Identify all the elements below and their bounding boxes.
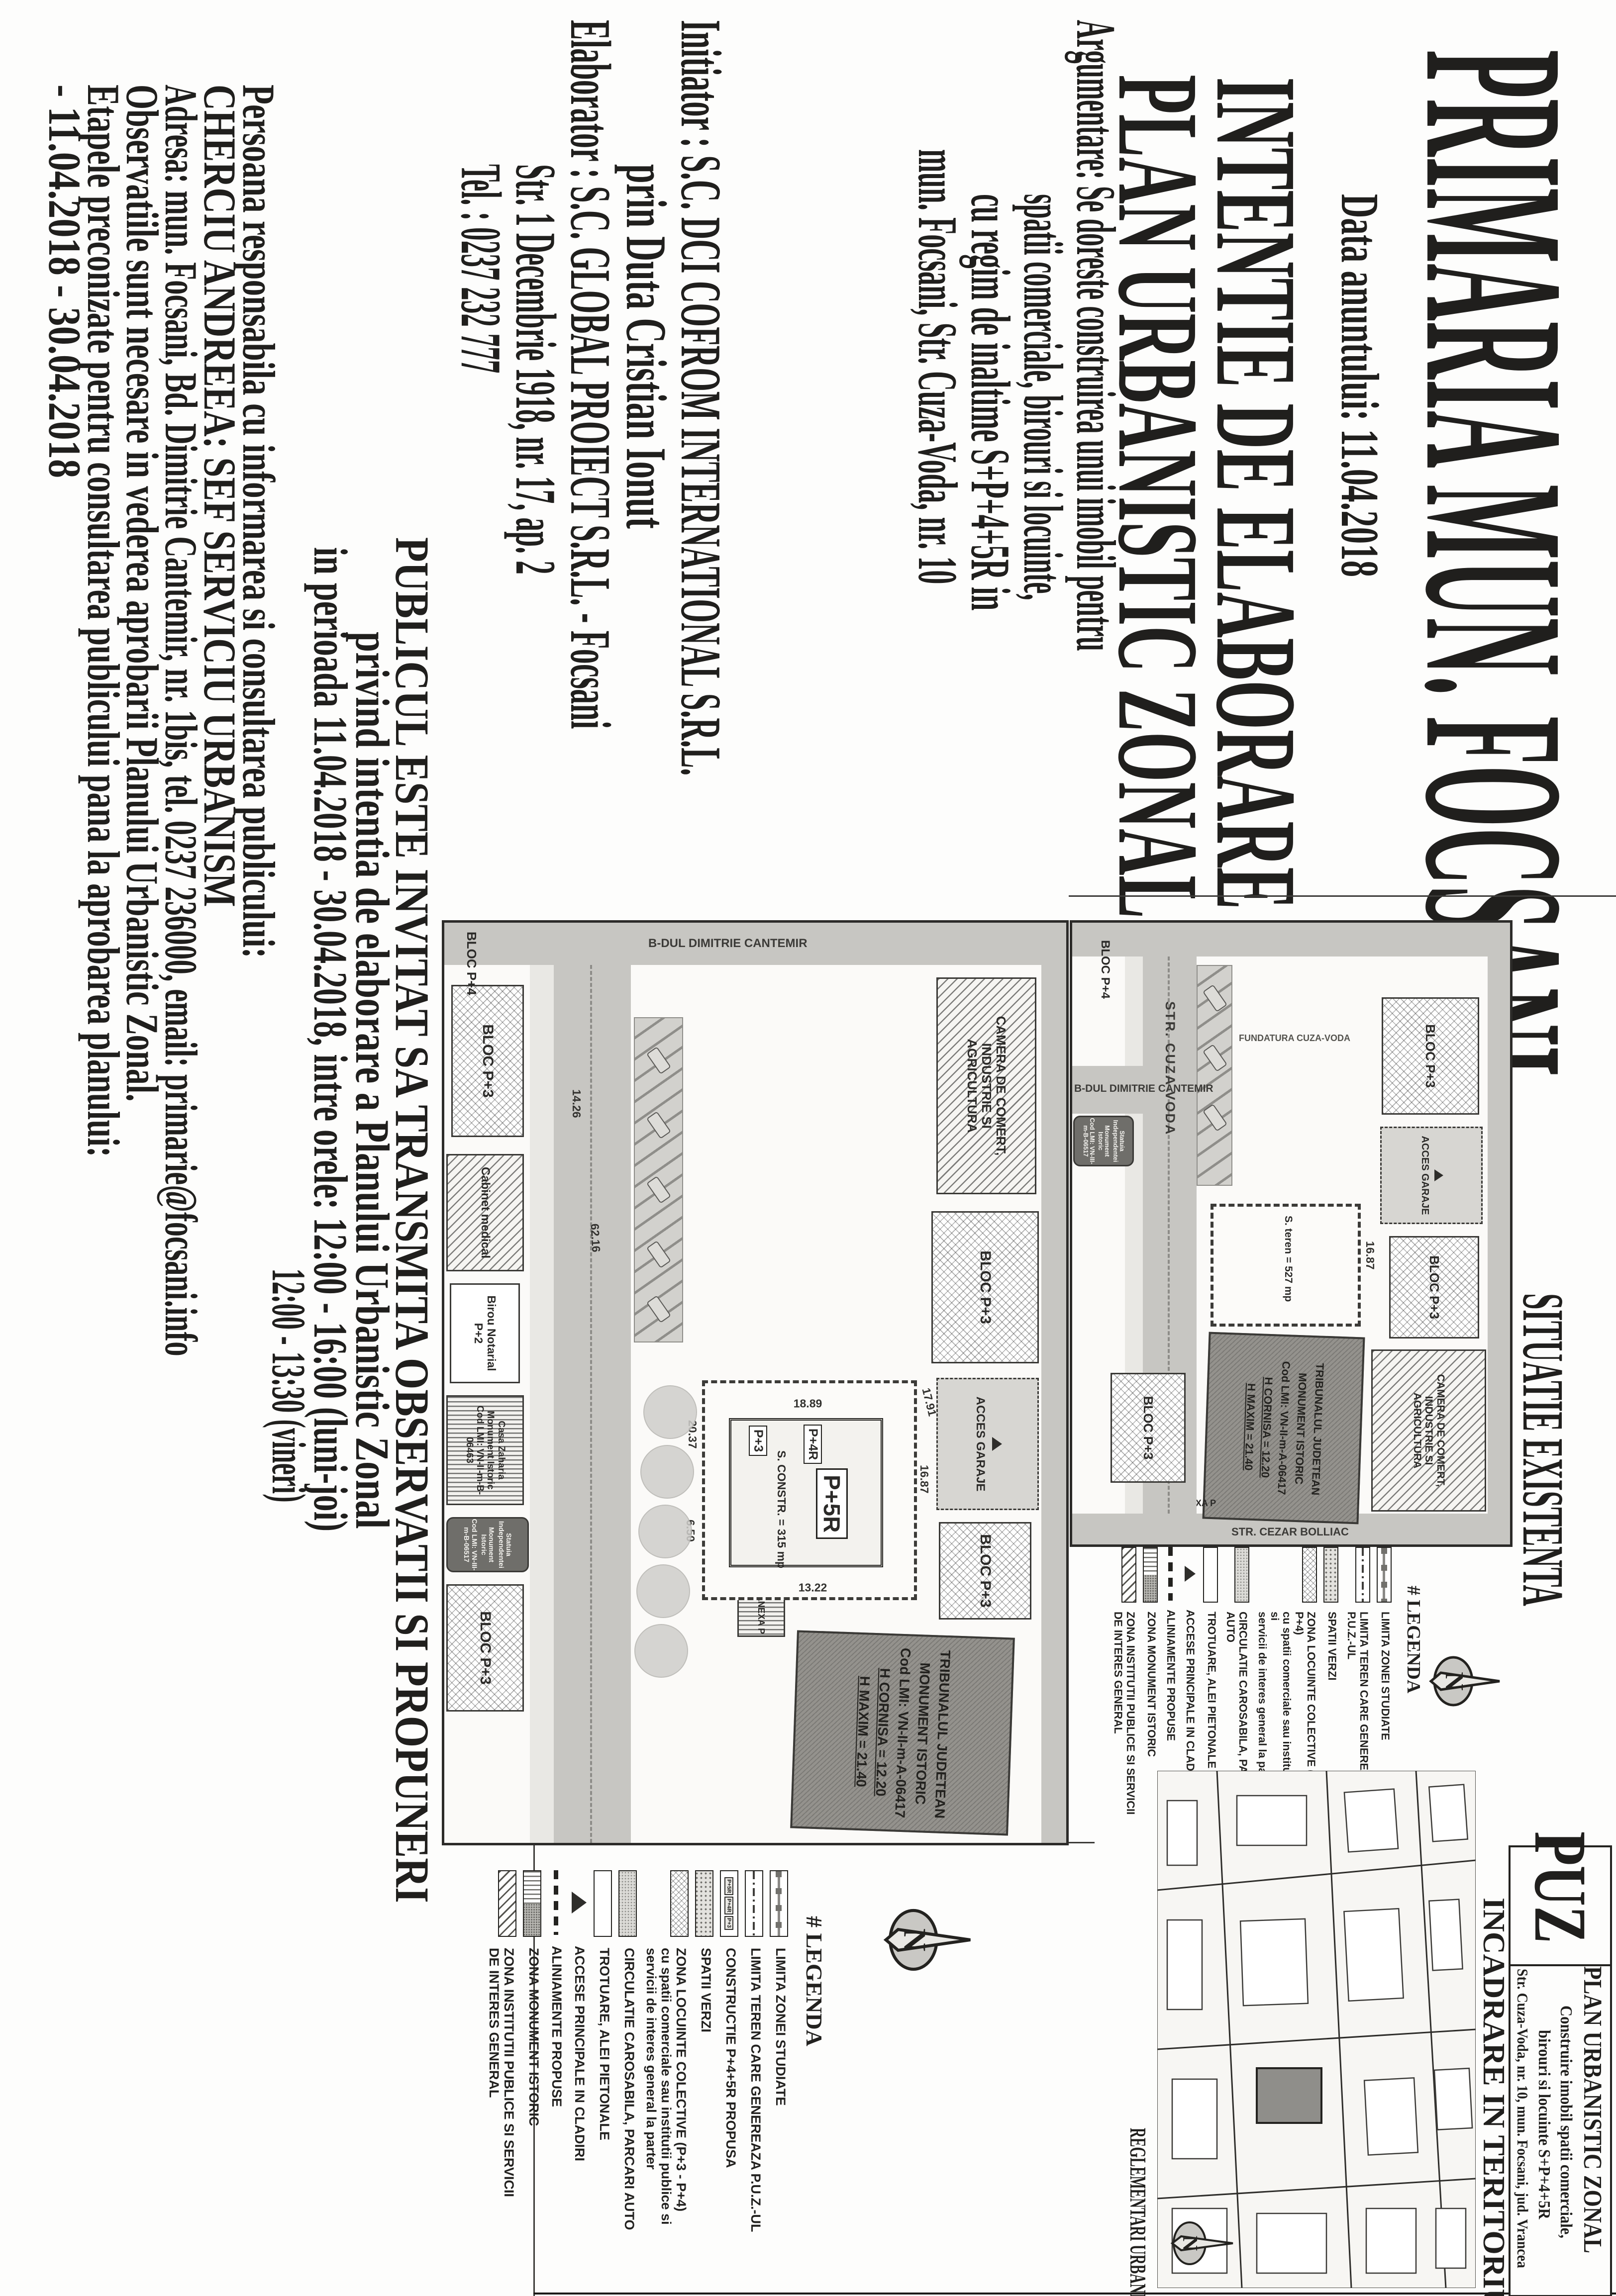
statue-block: Statuia Independentei Monument Istoric C… xyxy=(446,1517,529,1572)
incadrare-heading: INCADRARE IN TERITORIU xyxy=(1478,1898,1509,2296)
street-fundatura: FUNDATURA CUZA-VODA xyxy=(1239,1033,1350,1044)
access-arrow-icon xyxy=(992,1437,1002,1451)
sheet-edge xyxy=(533,2293,1616,2295)
car-icon xyxy=(1203,1104,1227,1132)
tree-icon xyxy=(640,1445,694,1499)
dash-line-icon xyxy=(548,1870,564,1935)
cabinet-parcel: Cabinet medical xyxy=(446,1154,524,1271)
parking-strip xyxy=(1197,965,1232,1186)
situatie-map: BLOC P+3 ACCES GARAJE BLOC P+3 CAMERA DE… xyxy=(1070,920,1513,1547)
acces-garaje-label: ACCES GARAJE xyxy=(1419,1136,1431,1215)
legend-item: ZONA INSTITUTII PUBLICE SI SERVICII DE I… xyxy=(1111,1547,1136,1825)
access-arrow-icon xyxy=(1435,1169,1444,1181)
diamond-hatch-icon xyxy=(670,1870,689,1937)
reglementari-legend: # LEGENDA LIMITA ZONEI STUDIATE LIMITA T… xyxy=(480,1870,827,2278)
access-triangle-icon xyxy=(1184,1547,1197,1601)
elaborator-line: Str. 1 Decembrie 1918, nr. 17, ap. 2 xyxy=(506,164,564,574)
proposed-building: P+5R P+4R P+3 S. CONSTR. = 315 mp xyxy=(729,1418,883,1567)
limit-line-squares-icon xyxy=(1377,1547,1392,1603)
tree-icon xyxy=(636,1564,690,1618)
title-block-line: birouri si locuinte S+P+4+5R xyxy=(1536,2030,1553,2219)
road-dots-icon xyxy=(618,1870,637,1937)
reglementari-map: B-DUL DIMITRIE CANTEMIR CAMERA DE COMERT… xyxy=(442,920,1069,1845)
dim: 16.87 xyxy=(917,1465,931,1494)
road-band xyxy=(1041,923,1066,1843)
situatie-title: SITUATIE EXISTENTA xyxy=(1514,1293,1572,1606)
elaborator-line: Tel. : 0237 232 777 xyxy=(452,164,509,373)
argumentare-line: mun. Focsani, Str. Cuza-Voda, nr. 10 xyxy=(909,149,965,584)
legend-title: # LEGENDA xyxy=(801,1916,827,2278)
tribunal-line: H MAXIM = 21.40 xyxy=(1242,1383,1258,1470)
camera-label: CAMERA DE COMERT, xyxy=(1434,1374,1446,1487)
green-dots-icon xyxy=(695,1870,713,1937)
car-icon xyxy=(1203,984,1227,1012)
tree-icon xyxy=(634,1624,688,1678)
limit-dash-dot-icon xyxy=(745,1870,763,1937)
tribunal-block: TRIBUNALUL JUDETEAN MONUMENT ISTORIC Cod… xyxy=(790,1630,1015,1835)
sheet-divider xyxy=(1069,895,1616,897)
legend-item: P+5R P+4R P+3 CONSTRUCTIE P+4+5R PROPUSA xyxy=(720,1870,738,2278)
compass-north-icon: N xyxy=(880,1900,972,1980)
bloc-p3-parcel: BLOC P+3 xyxy=(1389,1236,1479,1339)
dim-1687: 16.87 xyxy=(1363,1241,1377,1270)
legend-item: ACCESE PRINCIPALE IN CLADIRI xyxy=(571,1870,587,2278)
car-icon xyxy=(646,1176,671,1204)
bloc-p3-parcel: BLOC P+3 xyxy=(451,985,524,1137)
bloc-p3-parcel: BLOC P+3 xyxy=(1382,997,1479,1115)
dim: 18.89 xyxy=(794,1397,822,1410)
tree-icon xyxy=(643,1385,697,1439)
date-line: Data anuntului: 11.04.2018 xyxy=(1332,194,1386,577)
incadrare-city-map: N xyxy=(1157,1771,1476,2288)
argumentare-line: cu regim de inaltime S+P+4+5R in xyxy=(962,194,1018,611)
argumentare-line: spatii comerciale, birouri si locuinte, xyxy=(1015,194,1071,600)
statue-line: Monument Istoric xyxy=(1097,1117,1110,1165)
legend-item: CIRCULATIE CAROSABILA, PARCARI AUTO xyxy=(618,1870,637,2278)
title-block-line: PLAN URBANISTIC ZONAL xyxy=(1580,1966,1606,2253)
p5r-label: P+5R xyxy=(816,1468,848,1539)
diag-hatch-icon xyxy=(1121,1547,1136,1603)
car-icon xyxy=(646,1111,671,1139)
tribunal-block: TRIBUNALUL JUDETEAN MONUMENT ISTORIC Cod… xyxy=(1203,1332,1365,1525)
legend-item: ZONA INSTITUTII PUBLICE SI SERVICII DE I… xyxy=(487,1870,516,2278)
bloc-p3-parcel: BLOC P+3 xyxy=(931,1211,1039,1363)
limit-dash-dot-icon xyxy=(1355,1547,1370,1603)
legend-item: ALINIAMENTE PROPUSE xyxy=(548,1870,564,2278)
diamond-hatch-icon xyxy=(1302,1547,1317,1603)
camera-label: INDUSTRIE SI xyxy=(1423,1396,1435,1465)
tribunal-line: TRIBUNALUL JUDETEAN xyxy=(1309,1363,1326,1496)
monument-split-icon xyxy=(523,1870,541,1937)
parking-strip xyxy=(634,1017,683,1342)
sidewalk xyxy=(530,965,554,1843)
road-band-left xyxy=(1072,923,1488,957)
street-cantemir: B-DUL DIMITRIE CANTEMIR xyxy=(1074,1083,1213,1095)
bloc-p3-parcel: BLOC P+3 xyxy=(939,1522,1031,1620)
bloc-p4-label: BLOC P+4 xyxy=(464,932,479,995)
sconstr-label: S. CONSTR. = 315 mp xyxy=(775,1450,788,1568)
compass-north-icon: N xyxy=(1426,1649,1501,1714)
legend-item: ZONA LOCUINTE COLECTIVE (P+3 - P+4) cu s… xyxy=(643,1870,689,2278)
contact-line: - 11.04.2018 - 30.04.2018 xyxy=(42,85,88,478)
title-block-line: Str. Cuza-Voda, nr. 10, mun. Focsani, ju… xyxy=(1515,1969,1531,2268)
scanned-notice-page: PRIMARIA MUN. FOCSANI Data anuntului: 11… xyxy=(0,0,1616,2296)
bloc-p4-label: BLOC P+4 xyxy=(1098,940,1112,999)
tribunal-line: H CORNISA = 12.20 xyxy=(1258,1377,1275,1478)
car-icon xyxy=(646,1295,671,1323)
p3-label: P+3 xyxy=(749,1426,767,1456)
bloc-label: BLOC P+3 xyxy=(1140,1396,1156,1460)
camera-comert-parcel: CAMERA DE COMERT, INDUSTRIE SI AGRICULTU… xyxy=(936,977,1036,1194)
birou-parcel: Birou Notarial P+2 xyxy=(450,1283,520,1383)
diag-hatch-icon xyxy=(498,1870,516,1937)
p4r-label: P+4R xyxy=(804,1425,822,1464)
casa-zaharia-parcel: Casa Zaharia Monument Istoric Cod LMI: V… xyxy=(446,1395,524,1505)
legend-item: TROTUARE, ALEI PIETONALE xyxy=(594,1870,612,2278)
monument-split-icon xyxy=(1143,1547,1158,1603)
road-band-main: 62.16 14.26 xyxy=(554,965,631,1843)
svg-text:N: N xyxy=(1178,2236,1201,2251)
statue-line: Cod LMI: VN-III-m-B-06517 xyxy=(1082,1117,1095,1165)
tribunal-line: MONUMENT ISTORIC xyxy=(1292,1373,1309,1485)
puz-title-block: PUZ PLAN URBANISTIC ZONAL Construire imo… xyxy=(1509,1845,1612,2296)
access-triangle-icon xyxy=(571,1870,587,1935)
car-icon xyxy=(1203,1044,1227,1072)
legend-item: ZONA MONUMENT ISTORIC xyxy=(1143,1547,1158,1825)
elaborator-line: Elaborator : S.C. GLOBAL PROIECT S.R.L. … xyxy=(561,20,619,729)
dim: 14.26 xyxy=(570,1089,583,1118)
invitation-line: 12:00 - 13:30 (vineri) xyxy=(265,1268,312,1503)
car-icon xyxy=(646,1047,671,1074)
green-dots-icon xyxy=(1323,1547,1338,1603)
statue-line: Statuia Independentei xyxy=(1112,1117,1125,1165)
bloc-label: BLOC P+3 xyxy=(1426,1255,1442,1319)
dash-line-icon xyxy=(1164,1547,1177,1601)
teren-label: S. teren = 527 mp xyxy=(1282,1216,1294,1302)
legend-item: ZONA MONUMENT ISTORIC xyxy=(523,1870,541,2278)
dim: 13.22 xyxy=(799,1581,827,1594)
street-cantemir: B-DUL DIMITRIE CANTEMIR xyxy=(648,937,808,951)
proposed-boxes-icon: P+5R P+4R P+3 xyxy=(720,1870,738,1937)
car-icon xyxy=(646,1241,671,1268)
svg-text:N: N xyxy=(1440,1672,1468,1691)
bloc-label: BLOC P+3 xyxy=(1423,1024,1438,1088)
puz-code: PUZ xyxy=(1523,1831,1598,1943)
road-dots-icon xyxy=(1234,1547,1249,1603)
white-swatch-icon xyxy=(1203,1547,1218,1603)
road-band xyxy=(1488,923,1510,1544)
reglementari-heading: REGLEMENTARI URBANISTICE xyxy=(1126,2128,1149,2296)
legend-item: SPATII VERZI xyxy=(695,1870,713,2278)
initiator-line: prin Duta Cristian Ionut xyxy=(617,164,675,529)
bloc-p3-parcel: BLOC P+3 xyxy=(1111,1373,1186,1483)
statue-block: Statuia Independentei Monument Istoric C… xyxy=(1073,1116,1134,1166)
limit-line-squares-icon xyxy=(770,1870,788,1937)
legend-item: LIMITA TEREN CARE GENEREAZA P.U.Z.-UL xyxy=(745,1870,763,2278)
svg-text:N: N xyxy=(897,1928,932,1951)
street-cuza-voda: STR. CUZA VODA xyxy=(1162,1001,1178,1136)
bloc-p3-parcel: BLOC P+3 xyxy=(446,1584,524,1712)
argumentare-line: Argumentare: Se doreste construirea unui… xyxy=(1068,20,1123,651)
tribunal-line: Cod LMI: VN-II-m-A-06417 xyxy=(1275,1361,1292,1495)
camera-comert-parcel: CAMERA DE COMERT, INDUSTRIE SI AGRICULTU… xyxy=(1371,1349,1486,1512)
tree-icon xyxy=(638,1505,692,1558)
initiator-line: Initiator : S.C. DCI COFROM INTERNATIONA… xyxy=(672,20,729,776)
camera-label: AGRICULTURA xyxy=(1411,1393,1423,1468)
landscape-sheet: PRIMARIA MUN. FOCSANI Data anuntului: 11… xyxy=(0,0,1616,2296)
puz-parcel: S. teren = 527 mp xyxy=(1211,1204,1361,1327)
white-swatch-icon xyxy=(594,1870,612,1937)
title-block-line: Construire imobil spatii comerciale, xyxy=(1558,2006,1575,2238)
garage-parcel: ACCES GARAJE xyxy=(1380,1127,1483,1224)
garage-parcel: ACCES GARAJE xyxy=(936,1378,1039,1510)
puz-parcel: P+5R P+4R P+3 S. CONSTR. = 315 mp 18.89 … xyxy=(702,1380,917,1600)
street-bolliac: STR. CEZAR BOLLIAC xyxy=(1231,1526,1349,1538)
legend-item: LIMITA ZONEI STUDIATE xyxy=(770,1870,788,2278)
dim: 62.16 xyxy=(588,1223,603,1252)
